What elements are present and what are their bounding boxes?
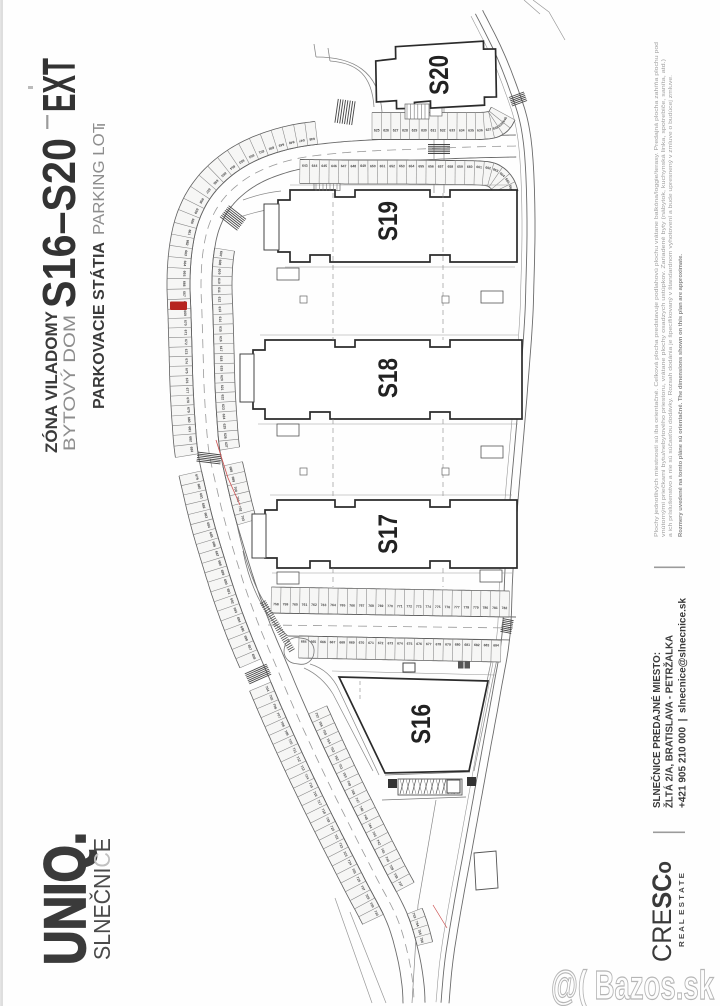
svg-text:632: 632	[440, 128, 446, 132]
svg-text:765: 765	[340, 603, 346, 607]
svg-text:771: 771	[397, 604, 403, 608]
svg-text:626: 626	[223, 433, 227, 439]
svg-text:628: 628	[402, 128, 408, 132]
svg-text:a ich príslušenstvo a nie sú s: a ich príslušenstvo a nie sú súčasťou do…	[668, 75, 674, 537]
svg-text:644: 644	[312, 164, 318, 168]
svg-text:769: 769	[378, 604, 384, 608]
svg-text:674: 674	[184, 358, 188, 364]
svg-text:681: 681	[464, 643, 470, 647]
svg-text:607: 607	[218, 251, 223, 257]
svg-text:Rozmery uvedené na tomto pláne: Rozmery uvedené na tomto pláne sú orient…	[678, 254, 684, 537]
svg-text:764: 764	[330, 603, 336, 607]
svg-text:625: 625	[374, 128, 380, 132]
svg-text:621: 621	[220, 385, 224, 391]
svg-text:682: 682	[188, 436, 192, 442]
svg-text:626: 626	[383, 128, 389, 132]
svg-text:766: 766	[349, 604, 355, 608]
svg-text:674: 674	[397, 642, 403, 646]
svg-text:774: 774	[425, 605, 431, 609]
svg-text:647: 647	[341, 164, 347, 168]
svg-text:615: 615	[218, 326, 222, 332]
svg-text:781: 781	[492, 606, 498, 610]
svg-text:637: 637	[485, 127, 491, 132]
svg-text:646: 646	[331, 164, 337, 168]
svg-text:664: 664	[301, 640, 307, 644]
svg-text:675: 675	[407, 642, 413, 646]
svg-text:623: 623	[221, 404, 225, 410]
svg-text:779: 779	[473, 606, 479, 610]
svg-text:669: 669	[349, 641, 355, 645]
svg-text:772: 772	[406, 604, 412, 608]
svg-text:780: 780	[482, 606, 488, 610]
svg-text:655: 655	[418, 164, 424, 168]
svg-text:678: 678	[186, 397, 190, 403]
svg-text:767: 767	[359, 604, 365, 608]
svg-text:768: 768	[368, 604, 374, 608]
svg-text:611: 611	[217, 287, 221, 293]
svg-text:676: 676	[416, 642, 422, 646]
svg-text:673: 673	[184, 349, 188, 355]
svg-text:608: 608	[218, 259, 222, 265]
svg-text:669: 669	[183, 310, 187, 316]
svg-text:625: 625	[222, 423, 226, 429]
svg-text:617: 617	[219, 346, 223, 352]
svg-text:654: 654	[409, 164, 415, 168]
svg-text:770: 770	[387, 604, 393, 608]
svg-text:649: 649	[360, 164, 366, 168]
svg-text:776: 776	[444, 605, 450, 609]
svg-text:759: 759	[283, 602, 289, 606]
svg-text:681: 681	[187, 426, 191, 432]
svg-text:610: 610	[217, 278, 221, 284]
svg-text:666: 666	[320, 640, 326, 644]
svg-text:PARKING LOT: PARKING LOT	[91, 122, 108, 235]
svg-text:616: 616	[219, 336, 223, 342]
svg-text:+421 905 210 000 | slnecnice: +421 905 210 000 | slnecnice@slnecnice.s…	[677, 598, 689, 808]
svg-text:680: 680	[187, 417, 191, 423]
svg-text:CRESCo: CRESCo	[647, 861, 677, 962]
svg-text:S16–S20: S16–S20	[33, 138, 85, 308]
svg-text:S20: S20	[424, 55, 455, 96]
svg-text:762: 762	[311, 603, 317, 607]
svg-text:683: 683	[189, 446, 194, 452]
svg-text:761: 761	[302, 603, 308, 607]
svg-text:624: 624	[222, 414, 226, 420]
svg-text:684: 684	[493, 643, 499, 647]
svg-text:S19: S19	[373, 201, 403, 241]
svg-text:634: 634	[459, 128, 465, 132]
svg-text:668: 668	[339, 640, 345, 644]
svg-text:683: 683	[484, 643, 490, 647]
svg-text:@( Bazos.sk: @( Bazos.sk	[551, 962, 714, 1006]
svg-text:657: 657	[438, 165, 444, 169]
svg-text:658: 658	[447, 165, 453, 169]
svg-text:671: 671	[184, 329, 188, 335]
svg-text:635: 635	[468, 128, 474, 132]
svg-text:S17: S17	[373, 514, 403, 554]
svg-text:612: 612	[217, 296, 221, 302]
svg-text:646: 646	[309, 137, 315, 142]
svg-text:670: 670	[359, 641, 365, 645]
svg-text:775: 775	[435, 605, 441, 609]
svg-text:627: 627	[224, 442, 229, 448]
svg-text:664: 664	[183, 260, 187, 266]
svg-text:777: 777	[454, 605, 460, 609]
svg-text:620: 620	[220, 375, 224, 381]
svg-text:679: 679	[186, 407, 190, 413]
svg-text:636: 636	[477, 128, 483, 132]
svg-text:618: 618	[219, 356, 223, 362]
svg-text:653: 653	[399, 164, 405, 168]
svg-text:ŽLTÁ 2/A, BRATISLAVA - PETRŽAL: ŽLTÁ 2/A, BRATISLAVA - PETRŽALKA	[663, 635, 676, 808]
svg-text:630: 630	[421, 128, 427, 132]
svg-text:663: 663	[183, 250, 188, 256]
svg-text:656: 656	[428, 164, 434, 168]
svg-text:680: 680	[455, 643, 461, 647]
svg-text:667: 667	[182, 291, 186, 297]
svg-text:645: 645	[321, 164, 327, 168]
svg-text:666: 666	[182, 281, 186, 287]
svg-text:661: 661	[476, 165, 482, 169]
svg-text:613: 613	[218, 306, 222, 312]
svg-text:660: 660	[467, 165, 473, 169]
svg-text:619: 619	[219, 365, 223, 371]
svg-text:SLNEČNICE: SLNEČNICE	[88, 838, 115, 960]
svg-text:682: 682	[474, 643, 480, 647]
svg-text:633: 633	[449, 128, 455, 132]
svg-text:665: 665	[182, 271, 186, 277]
svg-text:648: 648	[350, 164, 356, 168]
svg-text:778: 778	[463, 605, 469, 609]
svg-text:672: 672	[184, 339, 188, 345]
svg-text:673: 673	[387, 641, 393, 645]
svg-text:SLNEČNICE PREDAJNÉ MIESTO:: SLNEČNICE PREDAJNÉ MIESTO:	[650, 652, 663, 808]
svg-text:S18: S18	[373, 358, 403, 398]
svg-text:659: 659	[457, 165, 463, 169]
svg-text:BYTOVÝ DOM: BYTOVÝ DOM	[60, 315, 79, 451]
svg-text:758: 758	[273, 602, 279, 606]
svg-text:vnútornými priečkami bytu/neby: vnútornými priečkami bytu/nebytového pri…	[661, 59, 667, 537]
svg-text:671: 671	[368, 641, 374, 645]
svg-text:677: 677	[426, 642, 432, 646]
svg-text:643: 643	[302, 164, 308, 168]
svg-text:679: 679	[445, 643, 451, 647]
svg-text:629: 629	[412, 128, 418, 132]
svg-text:622: 622	[220, 394, 224, 400]
svg-text:763: 763	[321, 603, 327, 607]
svg-text:627: 627	[393, 128, 399, 132]
svg-text:609: 609	[217, 269, 221, 275]
svg-text:R E A L E S T A T E: R E A L E S T A T E	[677, 873, 686, 947]
svg-text:631: 631	[430, 128, 436, 132]
svg-text:675: 675	[185, 368, 189, 374]
svg-text:ZÓNA VILADOMY: ZÓNA VILADOMY	[42, 310, 61, 453]
svg-text:614: 614	[218, 316, 222, 322]
svg-text:651: 651	[380, 164, 386, 168]
svg-text:782: 782	[502, 606, 508, 610]
svg-text:672: 672	[378, 641, 384, 645]
svg-text:676: 676	[185, 378, 189, 384]
svg-text:760: 760	[292, 603, 298, 607]
svg-text:667: 667	[330, 640, 336, 644]
svg-text:S16: S16	[406, 704, 436, 744]
svg-text:652: 652	[389, 164, 395, 168]
svg-text:650: 650	[370, 164, 376, 168]
svg-text:670: 670	[183, 320, 187, 326]
svg-text:PARKOVACIE STÁTIA: PARKOVACIE STÁTIA	[91, 242, 108, 409]
svg-text:678: 678	[435, 642, 441, 646]
svg-text:Plochy jednotlivých miestností: Plochy jednotlivých miestností sú iba or…	[654, 42, 660, 537]
svg-text:773: 773	[416, 605, 422, 609]
svg-text:EXT: EXT	[33, 58, 85, 112]
svg-text:677: 677	[185, 388, 189, 394]
